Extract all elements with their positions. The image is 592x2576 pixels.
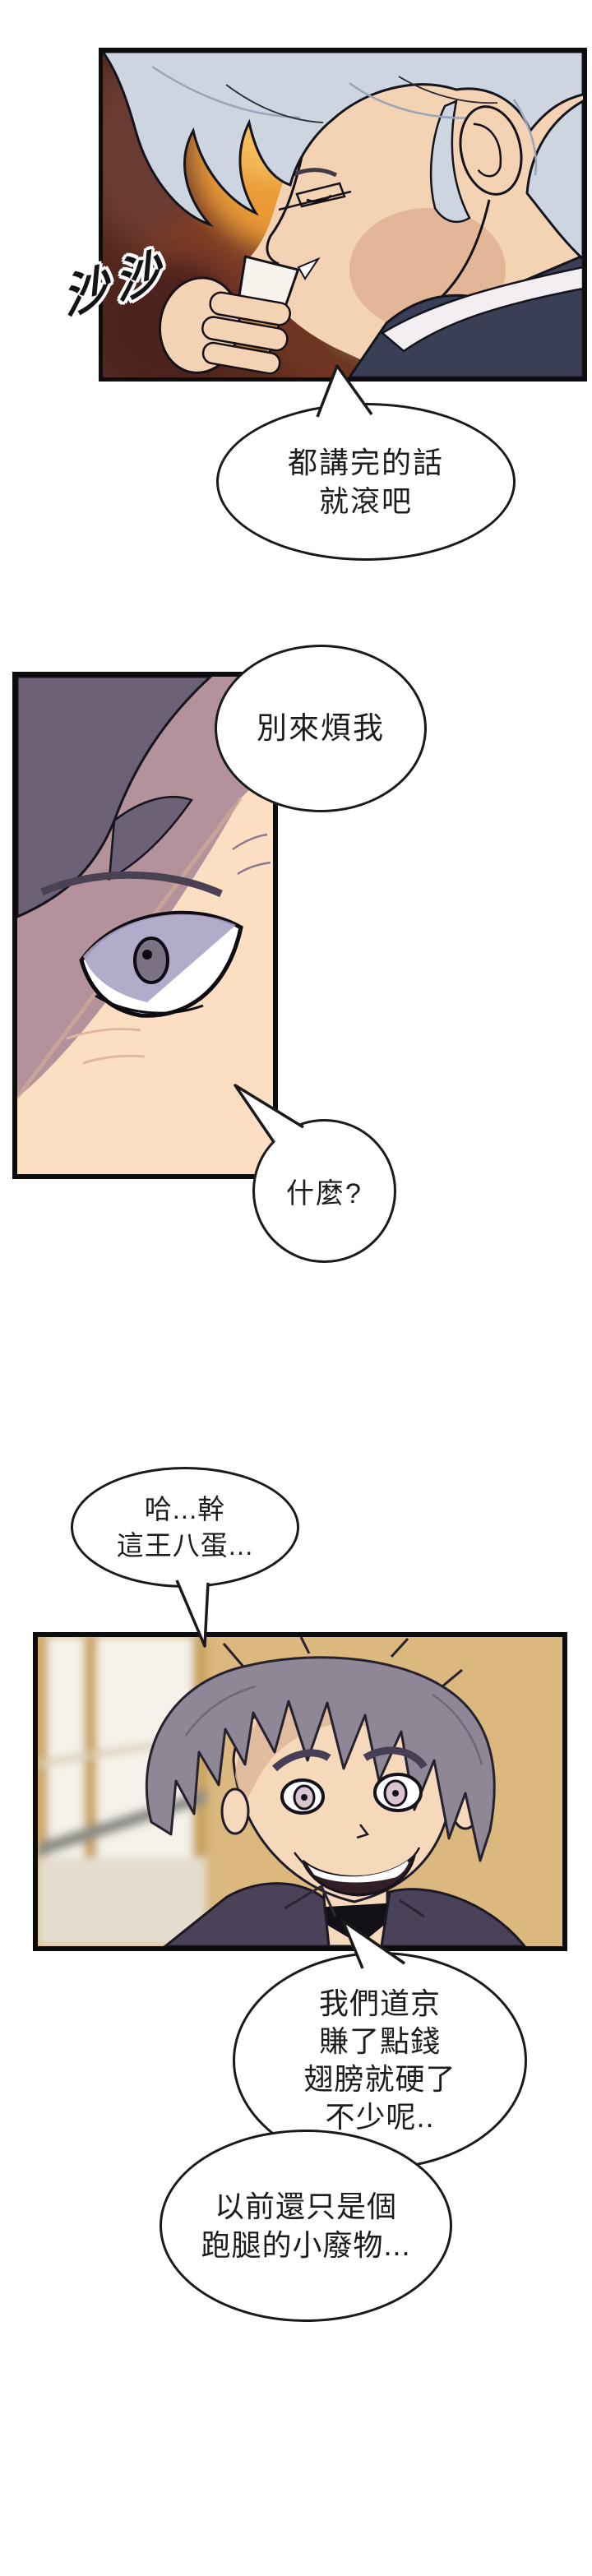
bubble-line: 別來煩我	[257, 710, 385, 747]
speech-bubble-errand-boy: 以前還只是個 跑腿的小廢物...	[160, 2130, 452, 2322]
comic-page: 沙沙 都講完的話 就滾吧 別來煩我	[0, 0, 592, 2576]
bubble-line: 這王八蛋...	[117, 1528, 254, 1564]
bubble-line: 翅膀就硬了	[303, 2060, 456, 2098]
speech-bubble-ha-bastard: 哈...幹 這王八蛋...	[71, 1467, 299, 1588]
bubble-line: 都講完的話	[288, 443, 444, 482]
bubble-line: 就滾吧	[319, 482, 413, 520]
bar-scene-artwork	[103, 52, 583, 377]
speech-bubble-get-out: 都講完的話 就滾吧	[216, 403, 516, 561]
bubble-line: 跑腿的小廢物...	[201, 2226, 410, 2264]
bubble-line: 以前還只是個	[215, 2187, 397, 2226]
panel-bar-scene	[99, 48, 587, 382]
grinning-man-artwork	[38, 1637, 562, 1946]
bubble-line: 什麼?	[286, 1171, 363, 1211]
bubble-line: 賺了點錢	[319, 2023, 441, 2060]
ear	[222, 1789, 248, 1834]
bubble-line: 哈...幹	[145, 1491, 226, 1528]
speech-bubble-what: 什麼?	[252, 1119, 396, 1263]
panel-grinning-man	[33, 1632, 567, 1951]
speech-bubble-dont-bother-me: 別來煩我	[215, 645, 427, 812]
bubble-line: 不少呢..	[325, 2098, 434, 2136]
bubble-line: 我們道京	[319, 1985, 441, 2023]
pupil	[135, 938, 168, 983]
